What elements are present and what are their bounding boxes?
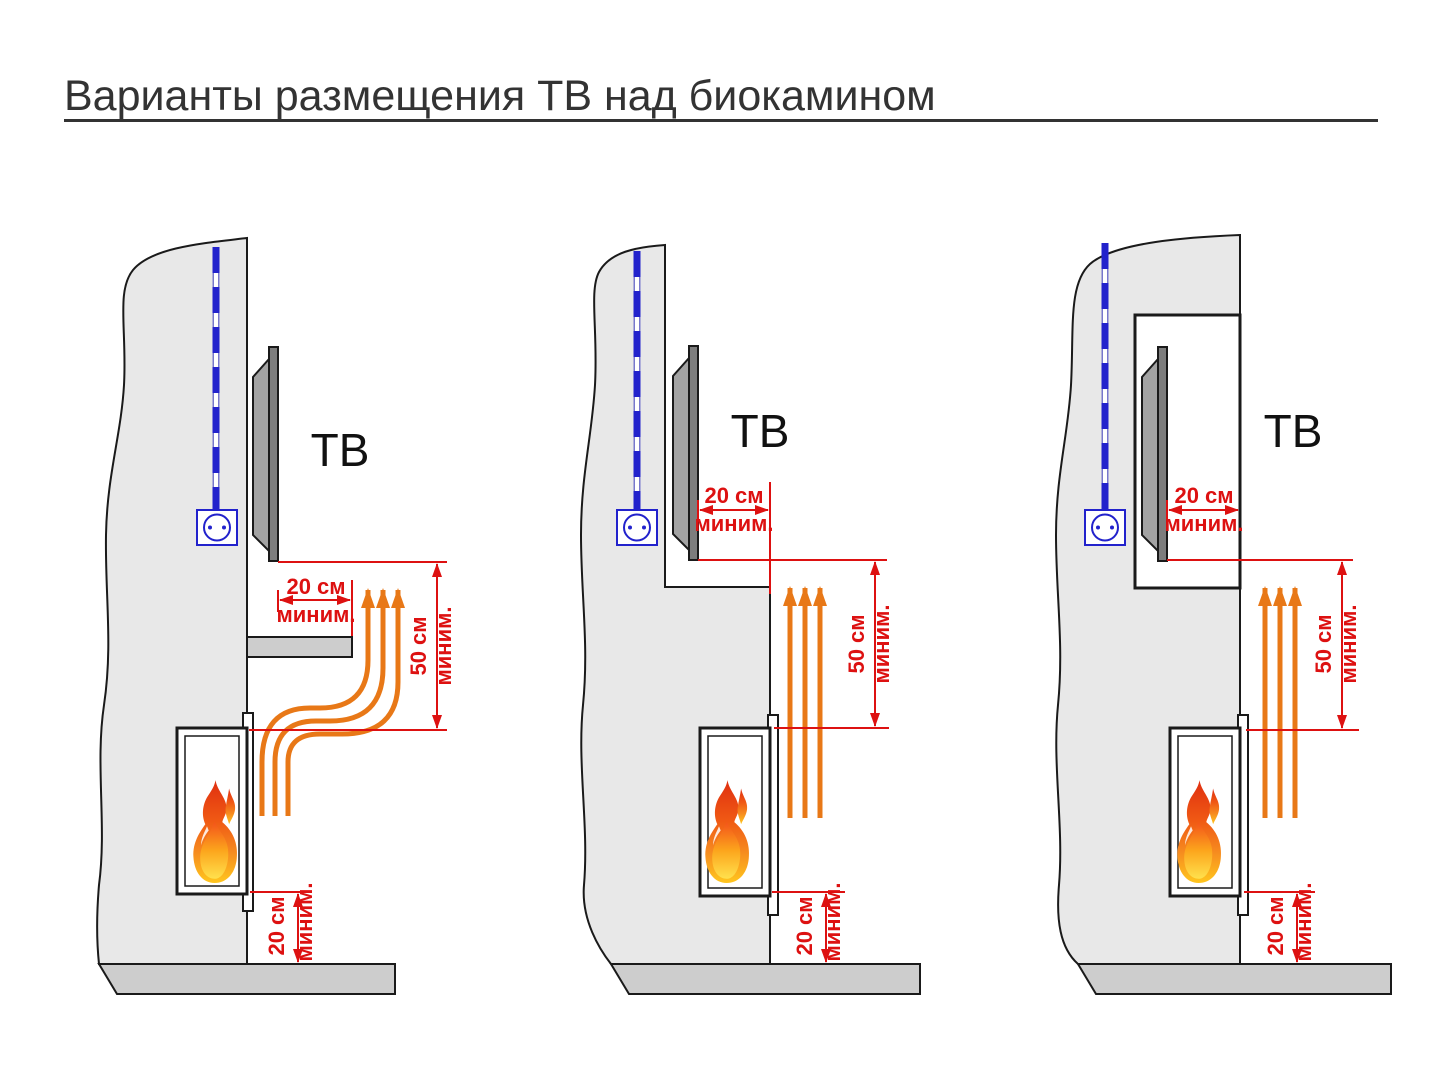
- wall-socket: [197, 510, 237, 545]
- clearance-dimension-qualifier: миним.: [431, 607, 456, 686]
- floor-dimension-qualifier: миним.: [1291, 883, 1316, 962]
- tv-side-view: [253, 347, 278, 561]
- floor-dimension-qualifier: миним.: [820, 883, 845, 962]
- diagram-variant-2: ТВ 20 см миним. 50 см миним.: [581, 245, 920, 994]
- tv-label: ТВ: [1264, 405, 1323, 457]
- dimension-texts: 20 см миним. 50 см миним. 20 см миним.: [264, 574, 456, 962]
- tv-label: ТВ: [311, 424, 370, 476]
- clearance-dimension-qualifier: миним.: [869, 605, 894, 684]
- clearance-dimension-value: 50 см: [844, 614, 869, 673]
- clearance-dimension-qualifier: миним.: [1336, 605, 1361, 684]
- diagram-variant-3: ТВ 20 см миним. 50 см миним. 20 с: [1056, 235, 1391, 994]
- gap-dimension-qualifier: миним.: [277, 602, 356, 627]
- floor-slab: [611, 964, 920, 994]
- infographic-page: Варианты размещения ТВ над биокамином: [0, 0, 1440, 1080]
- floor-slab: [1078, 964, 1391, 994]
- clearance-dimension-value: 50 см: [1311, 614, 1336, 673]
- wall-socket: [1085, 510, 1125, 545]
- clearance-dimension-value: 50 см: [406, 616, 431, 675]
- fireplace: [177, 713, 253, 911]
- tv-label: ТВ: [731, 405, 790, 457]
- heat-flow-arrows: [790, 588, 820, 818]
- gap-dimension-qualifier: миним.: [1165, 511, 1244, 536]
- floor-slab: [99, 964, 395, 994]
- floor-dimension-value: 20 см: [264, 896, 289, 955]
- fireplace: [1170, 715, 1248, 915]
- heat-flow-arrows: [1265, 588, 1295, 818]
- floor-dimension-value: 20 см: [792, 896, 817, 955]
- gap-dimension-value: 20 см: [1174, 483, 1233, 508]
- tv-side-view: [1142, 347, 1167, 561]
- gap-dimension-value: 20 см: [286, 574, 345, 599]
- gap-dimension-value: 20 см: [704, 483, 763, 508]
- gap-dimension-qualifier: миним.: [695, 511, 774, 536]
- floor-dimension-qualifier: миним.: [292, 883, 317, 962]
- protective-shelf: [247, 637, 352, 657]
- diagram-variant-1: ТВ 20 см миним. 50 см миним.: [97, 238, 456, 994]
- diagram-canvas: ТВ 20 см миним. 50 см миним.: [0, 0, 1440, 1080]
- wall-socket: [617, 510, 657, 545]
- floor-dimension-value: 20 см: [1263, 896, 1288, 955]
- fireplace: [700, 715, 778, 915]
